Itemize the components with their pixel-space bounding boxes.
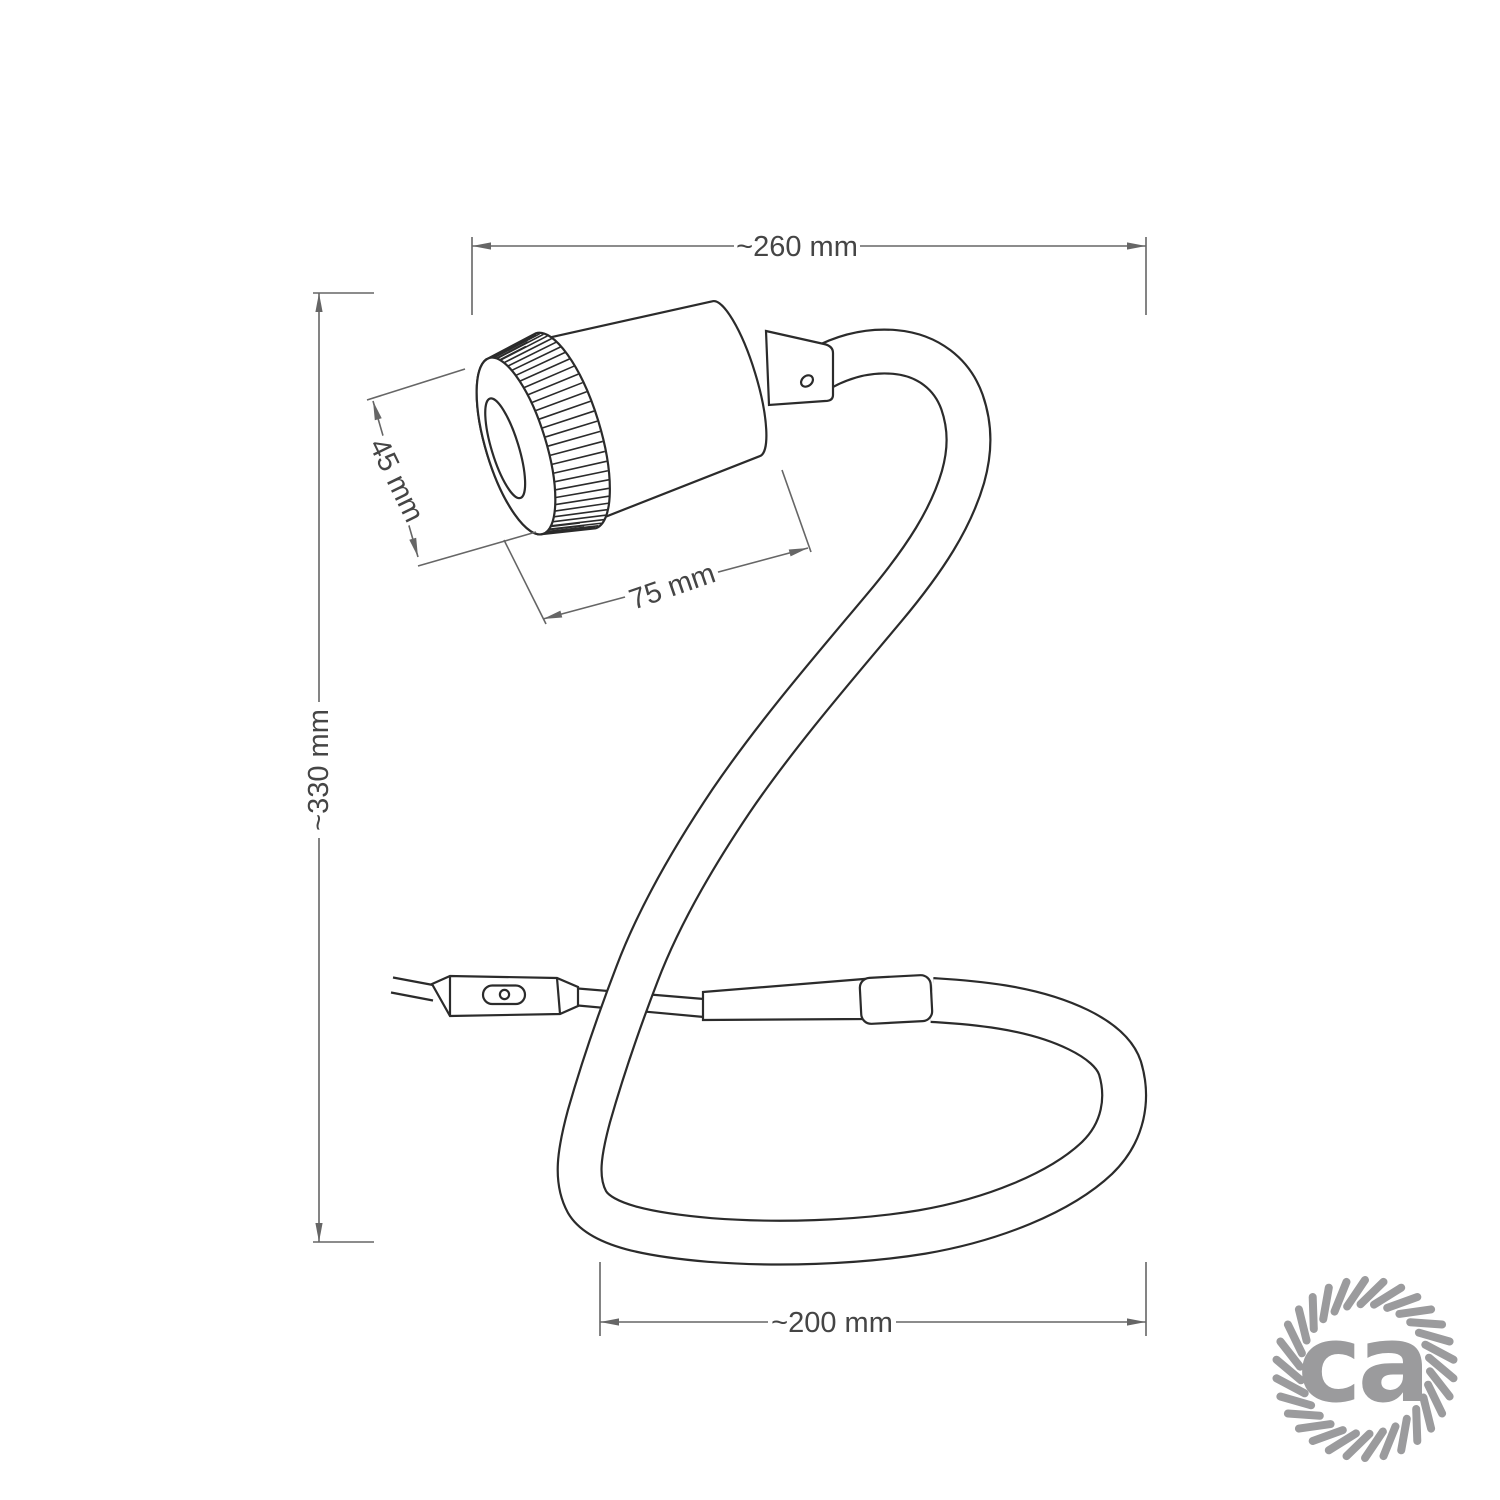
cable-sleeve bbox=[703, 979, 864, 1020]
switch-button bbox=[483, 986, 525, 1005]
product-dimension-diagram: ~260 mm ~330 mm 45 mm 75 mm bbox=[0, 0, 1500, 1500]
inline-switch bbox=[432, 976, 578, 1016]
logo-text: ca bbox=[1298, 1302, 1427, 1427]
lamp-head bbox=[457, 275, 784, 552]
dim-overall-height-label: ~330 mm bbox=[303, 709, 335, 831]
dim-spotlight-diameter-label: 45 mm bbox=[362, 434, 430, 528]
dim-cable-loop-width: ~200 mm bbox=[600, 1262, 1146, 1339]
dim-overall-width-label: ~260 mm bbox=[736, 231, 858, 263]
gooseneck-ferrule bbox=[859, 975, 932, 1025]
diagram-canvas: ~260 mm ~330 mm 45 mm 75 mm bbox=[0, 0, 1500, 1500]
dim-overall-height: ~330 mm bbox=[301, 293, 374, 1242]
dim-cable-loop-width-label: ~200 mm bbox=[771, 1307, 893, 1339]
brand-logo: ca bbox=[1277, 1280, 1454, 1458]
dim-overall-width: ~260 mm bbox=[472, 229, 1146, 315]
dim-spotlight-length-label: 75 mm bbox=[625, 557, 719, 616]
